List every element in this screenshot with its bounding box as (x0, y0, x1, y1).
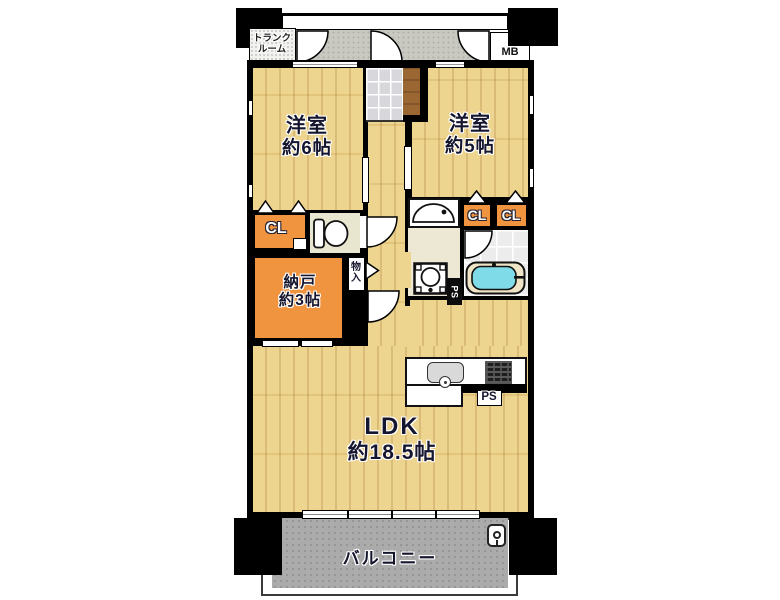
window-mullion-1 (347, 511, 349, 518)
meter-box-label: MB (501, 46, 518, 58)
trunk-room-label: トランクルーム (253, 33, 291, 55)
bedroom-5-top-window (435, 61, 465, 68)
closet-left-label: CL (265, 220, 286, 238)
bedroom-6-side-window-2 (248, 184, 253, 198)
hanger-icon (466, 190, 487, 204)
hanger-icon (505, 190, 526, 204)
entrance-tile-floor (366, 68, 403, 122)
washroom-opening (404, 252, 411, 288)
window-mullion-2 (391, 511, 393, 518)
window-mullion-3 (435, 511, 437, 518)
ldk-label: LDK 約18.5帖 (348, 414, 437, 466)
kitchen-faucet-icon (439, 376, 451, 388)
genkan-wall (420, 64, 428, 122)
folding-door-icon (365, 261, 380, 280)
entrance-door-arc (370, 30, 404, 64)
pipe-space-kitchen-label: PS (481, 391, 496, 403)
kitchen-counter-return (405, 384, 463, 407)
balcony-faucet-icon (487, 524, 506, 547)
toilet-door-arc (366, 216, 399, 249)
bedroom-5-sliding-door (404, 146, 412, 190)
bathroom-door-arc (464, 230, 494, 260)
pillar-bottom-left (234, 518, 282, 575)
storage-small-label: 物入 (351, 262, 361, 284)
storage-sliding-door-2 (301, 340, 333, 347)
corridor-end-door-arc (457, 30, 491, 64)
bedroom-6-label: 洋室 約6帖 (282, 115, 332, 159)
bedroom-6-sliding-door (362, 157, 369, 203)
vanity-sink-icon (409, 199, 459, 227)
corridor-outer-railing (282, 13, 508, 30)
pipe-space-bath-label: PS (449, 285, 459, 298)
bedroom-6-top-window (292, 61, 358, 68)
bedroom-5-side-window-2 (529, 168, 534, 188)
ldk-floor-patch (405, 306, 410, 347)
trunk-room-door-arc (296, 30, 330, 64)
bedroom-5-label: 洋室 約5帖 (445, 113, 495, 157)
washing-machine-icon (413, 262, 448, 295)
closet-left-step (293, 238, 307, 250)
bedroom-5-side-window-1 (529, 95, 534, 115)
stove-icon (485, 361, 512, 384)
storage-room-label: 納戸 約3帖 (279, 274, 322, 310)
pillar-bottom-right (509, 518, 557, 575)
ldk-floor-upper-right (410, 300, 528, 346)
bedroom-6-side-window-1 (248, 100, 253, 116)
genkan-wall-stub (403, 115, 428, 122)
closet-right-1-label: CL (468, 207, 487, 223)
toilet-icon (312, 217, 350, 251)
pipe-space-bath: PS (447, 278, 462, 305)
genkan-step-board (403, 68, 420, 117)
balcony-label: バルコニー (343, 544, 438, 569)
bathtub-icon (465, 261, 526, 295)
hanger-icon (256, 200, 275, 214)
hall-ldk-door-arc (367, 290, 401, 324)
storage-sliding-door-1 (262, 340, 299, 347)
pillar-top-right (508, 8, 558, 46)
floor-plan: PS トランクルーム (0, 0, 780, 600)
closet-right-2-label: CL (502, 207, 521, 223)
hanger-icon (289, 200, 308, 214)
